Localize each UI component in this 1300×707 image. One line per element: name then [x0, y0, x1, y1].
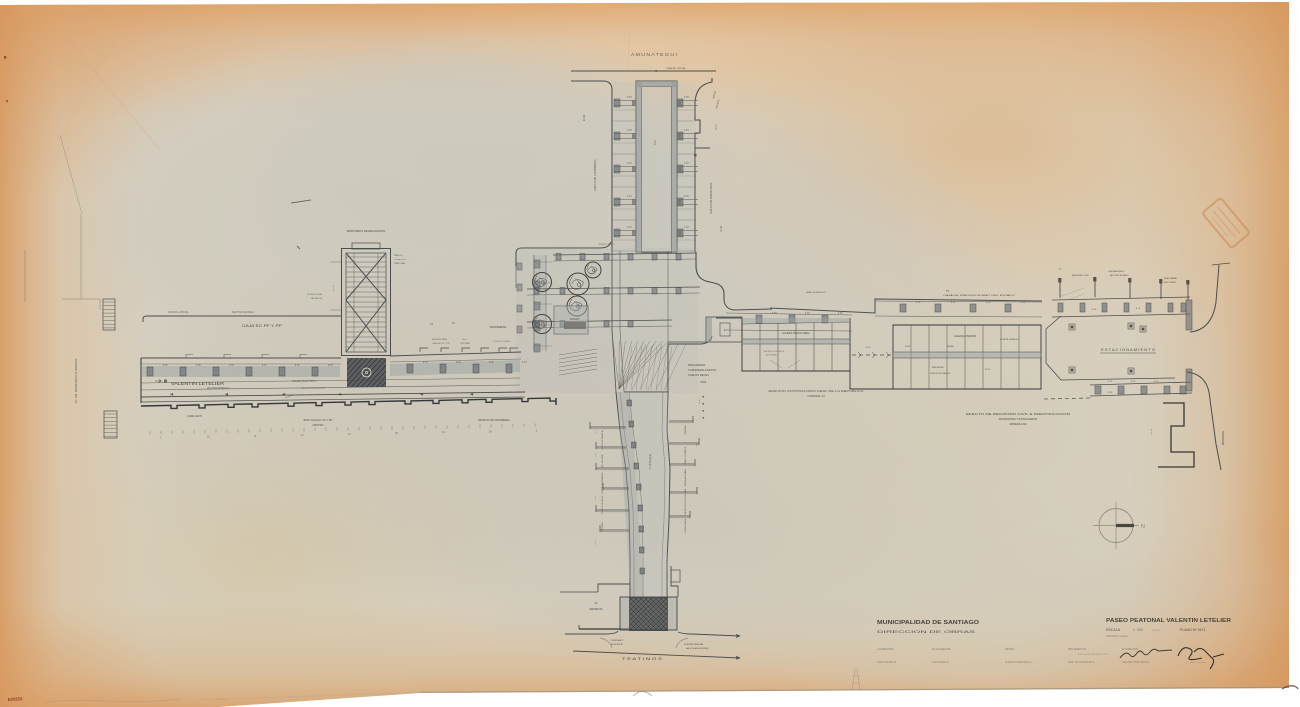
svg-text:IMPRENTA: IMPRENTA: [589, 607, 602, 611]
svg-text:EDIFICIO DE CARABINEROS: EDIFICIO DE CARABINEROS: [594, 159, 597, 191]
svg-text:EFECTO DE REGISTRO CIVIL E IDE: EFECTO DE REGISTRO CIVIL E IDENTIFICACIO…: [966, 413, 1070, 416]
svg-text:E: E: [724, 328, 726, 332]
svg-text:MINISTERIO DE EDUCACION: MINISTERIO DE EDUCACION: [347, 229, 386, 233]
svg-text:METALICA: METALICA: [311, 297, 322, 300]
svg-text:E20223: E20223: [8, 696, 23, 702]
svg-text:ADM. DE EDIFICIO: ADM. DE EDIFICIO: [806, 291, 826, 294]
svg-text:SECTOR PLAZUELA: SECTOR PLAZUELA: [232, 311, 254, 314]
svg-text:PLANO Nº 9471: PLANO Nº 9471: [1180, 628, 1205, 632]
svg-text:MORANDE: MORANDE: [1221, 431, 1225, 445]
svg-text:PESCADERIA: PESCADERIA: [688, 363, 706, 367]
svg-text:BAZAR: BAZAR: [947, 345, 954, 348]
svg-text:EDIF CAJA EC. PF Y PP: EDIF CAJA EC. PF Y PP: [304, 418, 333, 422]
svg-text:CUNETA LINEA SOL: CUNETA LINEA SOL: [1000, 338, 1020, 341]
svg-text:ACCESO POR CALLE: ACCESO POR CALLE: [764, 350, 785, 353]
svg-text:26.10: 26.10: [333, 284, 335, 290]
svg-text:CLUB DE LA UNION: CLUB DE LA UNION: [601, 495, 604, 514]
svg-text:4.70: 4.70: [163, 365, 168, 367]
svg-text:DIRECCION DE OBRAS: DIRECCION DE OBRAS: [877, 629, 976, 634]
svg-text:2DA PROVIDENCIA: 2DA PROVIDENCIA: [207, 387, 230, 390]
svg-text:18.05: 18.05: [905, 346, 911, 348]
svg-text:SANTIAGO CHILE: SANTIAGO CHILE: [1106, 634, 1128, 638]
svg-text:V. LETELIER: V. LETELIER: [648, 454, 653, 469]
svg-text:4.70: 4.70: [229, 365, 234, 367]
svg-text:SASTRERIA: SASTRERIA: [932, 366, 944, 369]
svg-text:4.70: 4.70: [423, 362, 428, 364]
svg-text:OFICINAS: OFICINAS: [601, 522, 604, 532]
svg-text:AV. LIB. BERNARDO O'HIGGINS: AV. LIB. BERNARDO O'HIGGINS: [74, 359, 78, 404]
svg-text:CENTRAL: CENTRAL: [460, 342, 471, 345]
svg-text:ESTRUCTURA: ESTRUCTURA: [307, 293, 322, 296]
svg-text:7318: 7318: [700, 380, 707, 384]
svg-text:EDIFICIO DE TESORERIA: EDIFICIO DE TESORERIA: [478, 418, 509, 422]
svg-text:EL DIRECTOR: EL DIRECTOR: [1122, 648, 1138, 651]
svg-text:LOS MIN. DE ASEO: LOS MIN. DE ASEO: [493, 340, 512, 343]
svg-text:4.70: 4.70: [262, 365, 267, 367]
svg-text:T E A T I N O S: T E A T I N O S: [622, 657, 663, 661]
svg-text:14.10: 14.10: [582, 114, 586, 121]
svg-text:CAJA DE PREVISION EMP. DEL ES: CAJA DE PREVISION EMP. DEL ESTADO: [943, 294, 1016, 297]
svg-text:CIA SEGUROS LA CHILENA: CIA SEGUROS LA CHILENA: [684, 488, 687, 515]
svg-text:ALVARO NUNEZ SILVA A.: ALVARO NUNEZ SILVA A.: [1005, 661, 1032, 664]
svg-text:REVISO: REVISO: [1005, 648, 1014, 651]
svg-text:12.70: 12.70: [985, 369, 991, 371]
svg-text:CUNETA L.OFICIAL: CUNETA L.OFICIAL: [168, 311, 189, 314]
svg-text:wwww: wwww: [1152, 629, 1160, 632]
svg-text:SEPT. 1975 FV: SEPT. 1975 FV: [1190, 662, 1206, 664]
svg-text:25.70: 25.70: [716, 124, 718, 130]
svg-text:EDIFICIO DE DOMINICANOS: EDIFICIO DE DOMINICANOS: [710, 182, 713, 213]
svg-text:SEM CARRE: SEM CARRE: [1164, 277, 1178, 280]
svg-text:HALL DE ASCENSORES: HALL DE ASCENSORES: [686, 647, 709, 650]
svg-text:4.70: 4.70: [456, 362, 461, 364]
svg-text:LA DIBUJANTE: LA DIBUJANTE: [877, 648, 894, 651]
svg-text:PEATONAL: PEATONAL: [394, 262, 406, 265]
svg-text:MONEDA 1342: MONEDA 1342: [1009, 423, 1027, 426]
svg-text:HOTEL DE FRANCIA: HOTEL DE FRANCIA: [601, 430, 604, 450]
svg-text:PASAPORTES Y EXTRANJEROS: PASAPORTES Y EXTRANJEROS: [999, 418, 1037, 421]
svg-text:DEL STADO: DEL STADO: [1164, 281, 1176, 284]
svg-text:BANCO ESPANOL: BANCO ESPANOL: [684, 446, 687, 464]
svg-text:CARNICERIA PUESTO: CARNICERIA PUESTO: [688, 368, 716, 372]
svg-text:LINEA DE EDIFICACION: LINEA DE EDIFICACION: [300, 387, 325, 390]
svg-text:CAFE HAITI: CAFE HAITI: [187, 414, 202, 418]
svg-text:PUERTA PRINCIPAL: PUERTA PRINCIPAL: [684, 643, 704, 646]
svg-text:7.248: 7.248: [699, 399, 701, 405]
svg-text:AL EDIFICIO: AL EDIFICIO: [611, 643, 623, 646]
svg-text:N: N: [1141, 524, 1145, 530]
svg-text:4.70: 4.70: [328, 365, 333, 367]
svg-text:AUT DEL ESTADO: AUT DEL ESTADO: [1110, 274, 1129, 277]
svg-text:EDIFICIO CONTRALORIA GRAL DE: EDIFICIO CONTRALORIA GRAL DE LA REPUBLIC…: [769, 390, 865, 393]
svg-text:4a 1#65: 4a 1#65: [215, 697, 226, 701]
svg-text:EDIF: EDIF: [462, 339, 468, 341]
svg-text:PORTAL ALESSANDRI: PORTAL ALESSANDRI: [601, 472, 604, 493]
svg-text:14.10: 14.10: [1151, 428, 1153, 434]
svg-text:KIOSCO: KIOSCO: [570, 318, 579, 321]
svg-text:CENTRO: CENTRO: [313, 423, 324, 427]
svg-text:4.70: 4.70: [522, 362, 527, 364]
svg-text:VALENTIN LETELIER: VALENTIN LETELIER: [171, 381, 224, 386]
svg-text:PASILLO: PASILLO: [394, 254, 403, 257]
svg-text:DE TIENDA: DE TIENDA: [766, 354, 777, 357]
svg-text:CIA CAJA PREV: CIA CAJA PREV: [1108, 270, 1125, 273]
svg-text:PUESTO DE DIARIOS: PUESTO DE DIARIOS: [930, 372, 951, 375]
svg-text:E S T A C I O N A M I E N T O: E S T A C I O N A M I E N T O: [1101, 348, 1156, 352]
svg-text:LIBRERIA: LIBRERIA: [684, 425, 687, 435]
svg-text:GALERIA PRESID. RIERA: GALERIA PRESID. RIERA: [782, 332, 810, 335]
svg-text:JUAN PEREZ R.: JUAN PEREZ R.: [932, 661, 950, 664]
svg-text:SONIA VALDES M.: SONIA VALDES M.: [877, 661, 897, 664]
svg-text:TESORERIA: TESORERIA: [490, 325, 507, 329]
svg-text:A LA I. MUNICIPALIDAD P/ORD: A LA I. MUNICIPALIDAD P/ORD: [1078, 653, 1108, 656]
svg-text:A.P. SEGURA: A.P. SEGURA: [601, 454, 604, 467]
svg-text:MUNICIPALIDAD DE SANTIAGO: MUNICIPALIDAD DE SANTIAGO: [877, 620, 980, 626]
svg-text:CAJA DE PP Y PP: CAJA DE PP Y PP: [432, 342, 451, 345]
svg-text:4.70: 4.70: [196, 365, 201, 367]
svg-text:ASCENSORES: ASCENSORES: [432, 338, 448, 341]
svg-text:4.70: 4.70: [489, 362, 494, 364]
svg-text:CATEDRAL 14: CATEDRAL 14: [807, 394, 825, 398]
svg-text:1 : 200: 1 : 200: [1133, 628, 1143, 632]
svg-text:ARQ MELCHOR URZUA V.: ARQ MELCHOR URZUA V.: [1122, 661, 1150, 664]
svg-text:ESCALA: ESCALA: [1106, 628, 1121, 632]
svg-text:REGM MIL COM: REGM MIL COM: [1072, 275, 1089, 277]
svg-text:EL DELINEANTE: EL DELINEANTE: [932, 648, 951, 651]
svg-text:SOLERA BAJA TIPO A: SOLERA BAJA TIPO A: [292, 380, 317, 383]
svg-text:14.10: 14.10: [720, 225, 723, 232]
svg-text:GALERIA EDWARDS: GALERIA EDWARDS: [954, 335, 977, 338]
svg-text:CARLOS REYES: CARLOS REYES: [688, 373, 709, 377]
svg-text:ARQ LUIS GONZALEZ M.: ARQ LUIS GONZALEZ M.: [1068, 661, 1095, 664]
svg-text:CUNETA L.OFICIAL: CUNETA L.OFICIAL: [666, 67, 686, 70]
svg-text:4.70: 4.70: [295, 365, 300, 367]
svg-text:CAJA EC PF Y PP: CAJA EC PF Y PP: [242, 324, 282, 328]
svg-text:VBO DIRECTOR: VBO DIRECTOR: [1068, 648, 1086, 651]
svg-text:A M U N A T E G U I: A M U N A T E G U I: [631, 52, 677, 57]
svg-text:CONSOLIDADA: CONSOLIDADA: [684, 518, 687, 533]
svg-text:TIENDA AHUMADA: TIENDA AHUMADA: [684, 469, 687, 487]
svg-text:PUERTA ACC: PUERTA ACC: [611, 639, 624, 642]
svg-text:CONEXION: CONEXION: [394, 259, 406, 261]
svg-text:PASEO PEATONAL VALENTIN L: PASEO PEATONAL VALENTIN LETELIER: [1106, 618, 1232, 624]
